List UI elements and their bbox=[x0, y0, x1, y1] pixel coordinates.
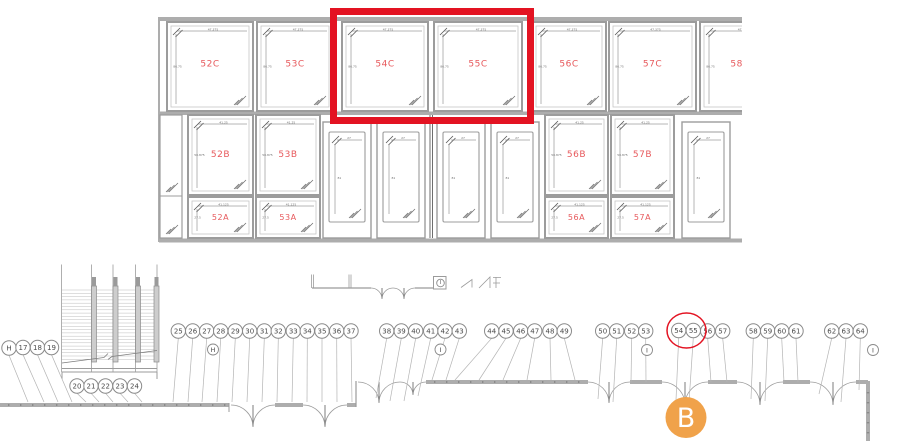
callout-37[interactable]: 37 bbox=[344, 324, 358, 338]
callout-number: 45 bbox=[502, 327, 511, 335]
wall-tick bbox=[8, 404, 9, 406]
callout-61[interactable]: 61 bbox=[789, 324, 803, 338]
callout-64[interactable]: 64 bbox=[853, 324, 867, 338]
wall-tick bbox=[470, 381, 471, 383]
wall-tick bbox=[152, 404, 153, 406]
callout-46[interactable]: 46 bbox=[514, 324, 528, 338]
callout-53[interactable]: 53 bbox=[639, 324, 653, 338]
wall-tick bbox=[68, 404, 69, 406]
door-leaf bbox=[383, 132, 419, 222]
section-badge-label: B bbox=[677, 403, 696, 434]
leader-line bbox=[247, 338, 250, 402]
leader-line bbox=[404, 338, 416, 401]
glass-panel-54c[interactable]: 47.37586.7554C bbox=[342, 22, 428, 111]
door-bay-5[interactable]: 2781 bbox=[682, 122, 730, 238]
glass-panel-57b[interactable]: 41.2550.87557B bbox=[611, 115, 674, 195]
width-dimension-text: 27 bbox=[706, 136, 710, 140]
panel-label: 53A bbox=[279, 213, 296, 222]
callout-18[interactable]: 18 bbox=[30, 340, 44, 354]
panel-label: 57A bbox=[634, 213, 651, 222]
plan-wall bbox=[347, 403, 356, 407]
callout-54[interactable]: 54 bbox=[672, 323, 686, 337]
panel-label: 53B bbox=[278, 150, 297, 160]
callout-letter: I bbox=[440, 346, 442, 354]
callout-number: 20 bbox=[73, 382, 82, 390]
callout-44[interactable]: 44 bbox=[485, 324, 499, 338]
callout-number: 54 bbox=[674, 327, 683, 335]
wall-tick bbox=[56, 404, 57, 406]
callout-number: 42 bbox=[441, 327, 450, 335]
width-dimension-text: 47.375 bbox=[383, 27, 394, 31]
glass-panel-55c[interactable]: 47.37586.7555C bbox=[434, 22, 522, 111]
callout-39[interactable]: 39 bbox=[394, 324, 408, 338]
letter-callout-i[interactable]: I bbox=[642, 345, 653, 356]
callout-number: 49 bbox=[560, 327, 569, 335]
canvas-mask bbox=[742, 0, 900, 250]
glass-panel-52b[interactable]: 41.2550.87552B bbox=[188, 115, 253, 195]
floor-plan bbox=[0, 265, 870, 441]
leader-line bbox=[262, 338, 264, 402]
glass-panel-53c[interactable]: 47.37586.7553C bbox=[257, 22, 333, 111]
plan-wall bbox=[783, 380, 810, 384]
width-dimension-text: 47.375 bbox=[476, 27, 487, 31]
wall-tick bbox=[530, 381, 531, 383]
wall-tick bbox=[128, 404, 129, 406]
callout-20[interactable]: 20 bbox=[70, 379, 84, 393]
callout-47[interactable]: 47 bbox=[528, 324, 542, 338]
door-bay-4[interactable]: 2781 bbox=[491, 122, 539, 238]
leader-line bbox=[819, 338, 832, 394]
leader-line bbox=[173, 338, 178, 402]
callout-41[interactable]: 41 bbox=[424, 324, 438, 338]
callout-number: H bbox=[6, 344, 11, 352]
elevation-head-band bbox=[159, 17, 743, 21]
wall-tick bbox=[176, 404, 177, 406]
callout-number: 19 bbox=[47, 344, 56, 352]
width-dimension-text: 27 bbox=[461, 136, 465, 140]
height-dimension-text: 27.5 bbox=[617, 216, 624, 220]
wall-tick bbox=[867, 402, 869, 403]
callout-number: 28 bbox=[216, 327, 225, 335]
bay-frame bbox=[160, 115, 182, 238]
height-dimension-text: 27.5 bbox=[551, 216, 558, 220]
plan-wall bbox=[275, 403, 303, 407]
door-leaf bbox=[497, 132, 533, 222]
height-dimension-text: 86.75 bbox=[615, 65, 624, 69]
wall-tick bbox=[867, 412, 869, 413]
callout-27[interactable]: 27 bbox=[200, 324, 214, 338]
glass-panel-57a[interactable]: 41.12527.557A bbox=[611, 197, 674, 238]
callout-43[interactable]: 43 bbox=[452, 324, 466, 338]
wall-tick bbox=[20, 404, 21, 406]
callout-number: 36 bbox=[332, 327, 341, 335]
leader-line bbox=[796, 338, 798, 382]
callout-letter: H bbox=[211, 346, 216, 354]
leader-line bbox=[455, 338, 492, 380]
callout-number: 32 bbox=[274, 327, 283, 335]
callout-number: 48 bbox=[546, 327, 555, 335]
callout-52[interactable]: 52 bbox=[625, 324, 639, 338]
height-dimension-text: 81 bbox=[392, 176, 396, 180]
wall-tick bbox=[867, 432, 869, 433]
callout-number: 63 bbox=[842, 327, 851, 335]
glass-panel-57c[interactable]: 47.37586.7557C bbox=[609, 22, 696, 111]
callout-number: 17 bbox=[19, 344, 28, 352]
leader-line bbox=[351, 338, 352, 402]
height-dimension-text: 81 bbox=[338, 176, 342, 180]
width-dimension-text: 41.125 bbox=[218, 202, 229, 206]
panel-label: 56A bbox=[568, 213, 585, 222]
width-dimension-text: 41.25 bbox=[287, 120, 296, 124]
callout-number: 44 bbox=[487, 327, 496, 335]
callout-60[interactable]: 60 bbox=[775, 324, 789, 338]
leader-line bbox=[564, 338, 575, 380]
callout-33[interactable]: 33 bbox=[286, 324, 300, 338]
height-dimension-text: 50.875 bbox=[551, 153, 562, 157]
wall-tick bbox=[32, 404, 33, 406]
drawing-sheet: 47.37586.7552C47.37586.7553C47.37586.755… bbox=[0, 0, 900, 441]
height-dimension-text: 27.5 bbox=[262, 216, 269, 220]
width-dimension-text: 47.375 bbox=[567, 27, 578, 31]
panel-label: 52A bbox=[212, 213, 229, 222]
leader-line bbox=[782, 338, 784, 382]
callout-number: 40 bbox=[411, 327, 420, 335]
glass-panel-56a[interactable]: 41.12527.556A bbox=[545, 197, 608, 238]
callout-number: 29 bbox=[231, 327, 240, 335]
wall-tick bbox=[518, 381, 519, 383]
callout-31[interactable]: 31 bbox=[257, 324, 271, 338]
leader-line bbox=[77, 393, 86, 402]
door-leaf bbox=[329, 132, 365, 222]
callout-48[interactable]: 48 bbox=[543, 324, 557, 338]
letter-callout-i[interactable]: I bbox=[437, 279, 445, 287]
callout-number: 61 bbox=[792, 327, 801, 335]
leader-line bbox=[550, 338, 551, 380]
callout-28[interactable]: 28 bbox=[214, 324, 228, 338]
leader-line bbox=[418, 338, 431, 396]
door-leaf bbox=[688, 132, 724, 222]
stair-post-cap bbox=[136, 277, 140, 286]
leader-line bbox=[527, 338, 535, 380]
panel-label: 57C bbox=[643, 60, 662, 70]
callout-21[interactable]: 21 bbox=[84, 379, 98, 393]
wall-tick bbox=[188, 404, 189, 406]
width-dimension-text: 27 bbox=[515, 136, 519, 140]
callout-number: 51 bbox=[612, 327, 621, 335]
callout-number: 47 bbox=[530, 327, 539, 335]
width-dimension-text: 47.375 bbox=[208, 27, 219, 31]
wall-tick bbox=[542, 381, 543, 383]
stair-post bbox=[136, 286, 141, 362]
panel-label: 55C bbox=[468, 60, 487, 70]
callout-55[interactable]: 55 bbox=[686, 323, 700, 337]
stair-post-cap bbox=[155, 277, 159, 286]
section-badge[interactable]: B bbox=[666, 397, 707, 438]
wall-tick bbox=[554, 381, 555, 383]
glass-panel-56c[interactable]: 47.37586.7556C bbox=[532, 22, 606, 111]
panel-label: 54C bbox=[375, 60, 394, 70]
stair-post-cap bbox=[114, 277, 118, 286]
callout-58[interactable]: 58 bbox=[746, 324, 760, 338]
callout-number: 38 bbox=[382, 327, 391, 335]
callout-49[interactable]: 49 bbox=[557, 324, 571, 338]
callout-number: 57 bbox=[718, 327, 727, 335]
callout-number: 31 bbox=[260, 327, 269, 335]
plan-wall bbox=[0, 403, 229, 407]
callout-number: 18 bbox=[33, 344, 42, 352]
callout-number: 46 bbox=[516, 327, 525, 335]
width-dimension-text: 41.25 bbox=[219, 120, 228, 124]
callout-number: 27 bbox=[202, 327, 211, 335]
callout-24[interactable]: 24 bbox=[127, 379, 141, 393]
callout-number: 50 bbox=[598, 327, 607, 335]
height-dimension-text: 81 bbox=[452, 176, 456, 180]
wall-tick bbox=[434, 381, 435, 383]
callout-number: 25 bbox=[174, 327, 183, 335]
wall-tick bbox=[494, 381, 495, 383]
door-leaf bbox=[443, 132, 479, 222]
glass-panel-52c[interactable]: 47.37586.7552C bbox=[167, 22, 253, 111]
width-dimension-text: 41.125 bbox=[574, 202, 585, 206]
callout-40[interactable]: 40 bbox=[409, 324, 423, 338]
storefront-elevation: 47.37586.7552C47.37586.7553C47.37586.755… bbox=[158, 17, 780, 243]
height-dimension-text: 86.75 bbox=[440, 65, 449, 69]
callout-63[interactable]: 63 bbox=[839, 324, 853, 338]
letter-callout-i[interactable]: I bbox=[435, 344, 446, 355]
callout-number: 56 bbox=[703, 327, 712, 335]
callout-38[interactable]: 38 bbox=[380, 324, 394, 338]
callout-32[interactable]: 32 bbox=[271, 324, 285, 338]
callout-number: 43 bbox=[455, 327, 464, 335]
leader-line bbox=[503, 338, 521, 380]
stair-post bbox=[113, 286, 118, 362]
wall-tick bbox=[566, 381, 567, 383]
leader-line bbox=[106, 393, 114, 402]
leader-line bbox=[188, 338, 193, 402]
height-dimension-text: 81 bbox=[697, 176, 701, 180]
callout-22[interactable]: 22 bbox=[98, 379, 112, 393]
stair-post-cap bbox=[92, 277, 96, 286]
callout-19[interactable]: 19 bbox=[44, 340, 58, 354]
leader-line bbox=[202, 338, 207, 402]
callout-number: 58 bbox=[749, 327, 758, 335]
panel-label: 53C bbox=[285, 60, 304, 70]
leader-line bbox=[841, 338, 846, 402]
callout-number: 37 bbox=[347, 327, 356, 335]
wall-tick bbox=[867, 422, 869, 423]
plan-wall bbox=[708, 380, 737, 384]
callout-17[interactable]: 17 bbox=[16, 340, 30, 354]
callout-35[interactable]: 35 bbox=[315, 324, 329, 338]
callout-42[interactable]: 42 bbox=[438, 324, 452, 338]
glass-panel-53b[interactable]: 41.2550.87553B bbox=[256, 115, 320, 195]
width-dimension-text: 41.125 bbox=[286, 202, 297, 206]
callout-26[interactable]: 26 bbox=[186, 324, 200, 338]
leader-line bbox=[708, 338, 711, 382]
height-dimension-text: 86.75 bbox=[706, 65, 715, 69]
callout-51[interactable]: 51 bbox=[610, 324, 624, 338]
leader-line bbox=[751, 338, 753, 399]
wall-tick bbox=[482, 381, 483, 383]
height-dimension-text: 86.75 bbox=[538, 65, 547, 69]
callout-57[interactable]: 57 bbox=[716, 324, 730, 338]
height-dimension-text: 50.875 bbox=[617, 153, 628, 157]
drawing-canvas: 47.37586.7552C47.37586.7553C47.37586.755… bbox=[0, 0, 900, 441]
stair-block bbox=[62, 265, 160, 380]
wall-tick bbox=[224, 404, 225, 406]
callout-23[interactable]: 23 bbox=[113, 379, 127, 393]
callout-34[interactable]: 34 bbox=[300, 324, 314, 338]
leader-line bbox=[376, 338, 387, 398]
wall-tick bbox=[44, 404, 45, 406]
door-bay-3[interactable]: 2781 bbox=[437, 122, 485, 238]
callout-56[interactable]: 56 bbox=[701, 324, 715, 338]
leader-line bbox=[9, 355, 28, 402]
stair-slope-line bbox=[62, 351, 157, 364]
door-bay-1[interactable]: 2781 bbox=[323, 122, 371, 238]
letter-callout-i[interactable]: I bbox=[868, 345, 879, 356]
callout-number: 21 bbox=[87, 382, 96, 390]
width-dimension-text: 47.375 bbox=[650, 27, 661, 31]
callout-50[interactable]: 50 bbox=[596, 324, 610, 338]
glass-panel-52a[interactable]: 41.12527.552A bbox=[188, 197, 253, 238]
callout-36[interactable]: 36 bbox=[330, 324, 344, 338]
height-dimension-text: 50.875 bbox=[194, 153, 205, 157]
callout-number: 33 bbox=[289, 327, 298, 335]
wall-tick bbox=[867, 392, 869, 393]
panel-label: 57B bbox=[633, 150, 652, 160]
stair-post bbox=[92, 286, 97, 362]
leader-line bbox=[91, 393, 99, 402]
callout-62[interactable]: 62 bbox=[825, 324, 839, 338]
glass-panel-53a[interactable]: 41.12527.553A bbox=[256, 197, 320, 238]
width-dimension-text: 27 bbox=[401, 136, 405, 140]
wall-tick bbox=[458, 381, 459, 383]
height-dimension-text: 86.75 bbox=[173, 65, 182, 69]
leader-line bbox=[390, 338, 401, 401]
panel-label: 56C bbox=[559, 60, 578, 70]
wall-tick bbox=[104, 404, 105, 406]
vestibule-plan bbox=[312, 275, 502, 300]
panel-label: 56B bbox=[567, 150, 586, 160]
callout-letter: I bbox=[440, 280, 441, 286]
callout-number: 30 bbox=[245, 327, 254, 335]
leader-line bbox=[613, 338, 617, 402]
width-dimension-text: 41.25 bbox=[575, 120, 584, 124]
callout-number: 62 bbox=[827, 327, 836, 335]
leader-line bbox=[292, 338, 293, 402]
callout-number: 35 bbox=[318, 327, 327, 335]
leader-line bbox=[479, 338, 506, 380]
callout-number: 52 bbox=[627, 327, 636, 335]
elevation-base-band bbox=[159, 239, 743, 243]
callout-number: 41 bbox=[426, 327, 435, 335]
callout-number: 23 bbox=[116, 382, 125, 390]
callout-number: 24 bbox=[130, 382, 139, 390]
plan-detail-symbols bbox=[461, 277, 501, 288]
callout-29[interactable]: 29 bbox=[228, 324, 242, 338]
wall-tick bbox=[446, 381, 447, 383]
callout-number: 34 bbox=[303, 327, 312, 335]
leader-line bbox=[446, 338, 459, 380]
width-dimension-text: 41.25 bbox=[641, 120, 650, 124]
clipped-left-bay bbox=[160, 115, 182, 238]
callout-number: 55 bbox=[689, 327, 698, 335]
callout-45[interactable]: 45 bbox=[499, 324, 513, 338]
callout-number: 60 bbox=[777, 327, 786, 335]
callout-number: 22 bbox=[101, 382, 110, 390]
wall-tick bbox=[212, 404, 213, 406]
panel-label: 52C bbox=[200, 60, 219, 70]
height-dimension-text: 81 bbox=[506, 176, 510, 180]
width-dimension-text: 47.375 bbox=[293, 27, 304, 31]
wall-tick bbox=[200, 404, 201, 406]
callout-number: 64 bbox=[856, 327, 865, 335]
leader-line bbox=[277, 338, 278, 402]
leader-line bbox=[232, 338, 235, 402]
glass-panel-56b[interactable]: 41.2550.87556B bbox=[545, 115, 608, 195]
leader-line bbox=[631, 338, 632, 382]
wall-tick bbox=[164, 404, 165, 406]
width-dimension-text: 27 bbox=[347, 136, 351, 140]
wall-tick bbox=[116, 404, 117, 406]
height-dimension-text: 50.875 bbox=[262, 153, 273, 157]
height-dimension-text: 86.75 bbox=[348, 65, 357, 69]
leader-line bbox=[598, 338, 603, 399]
wall-tick bbox=[578, 381, 579, 383]
callout-number: 53 bbox=[641, 327, 650, 335]
wall-tick bbox=[92, 404, 93, 406]
wall-tick bbox=[506, 381, 507, 383]
height-dimension-text: 86.75 bbox=[263, 65, 272, 69]
wall-tick bbox=[80, 404, 81, 406]
door-bay-2[interactable]: 2781 bbox=[377, 122, 425, 238]
leader-line bbox=[765, 338, 768, 401]
leader-line bbox=[135, 393, 143, 402]
callout-25[interactable]: 25 bbox=[171, 324, 185, 338]
callout-h[interactable]: H bbox=[2, 341, 16, 355]
leader-line bbox=[120, 393, 128, 402]
letter-callout-h[interactable]: H bbox=[208, 344, 219, 355]
callout-number: 59 bbox=[763, 327, 772, 335]
wall-tick bbox=[140, 404, 141, 406]
callout-number: 39 bbox=[397, 327, 406, 335]
callout-letter: I bbox=[872, 346, 874, 354]
leader-line bbox=[723, 338, 727, 382]
panel-label: 52B bbox=[211, 150, 230, 160]
width-dimension-text: 41.125 bbox=[640, 202, 651, 206]
callout-30[interactable]: 30 bbox=[243, 324, 257, 338]
callout-59[interactable]: 59 bbox=[761, 324, 775, 338]
height-dimension-text: 27.5 bbox=[194, 216, 201, 220]
callout-letter: I bbox=[646, 346, 648, 354]
callout-number: 26 bbox=[188, 327, 197, 335]
